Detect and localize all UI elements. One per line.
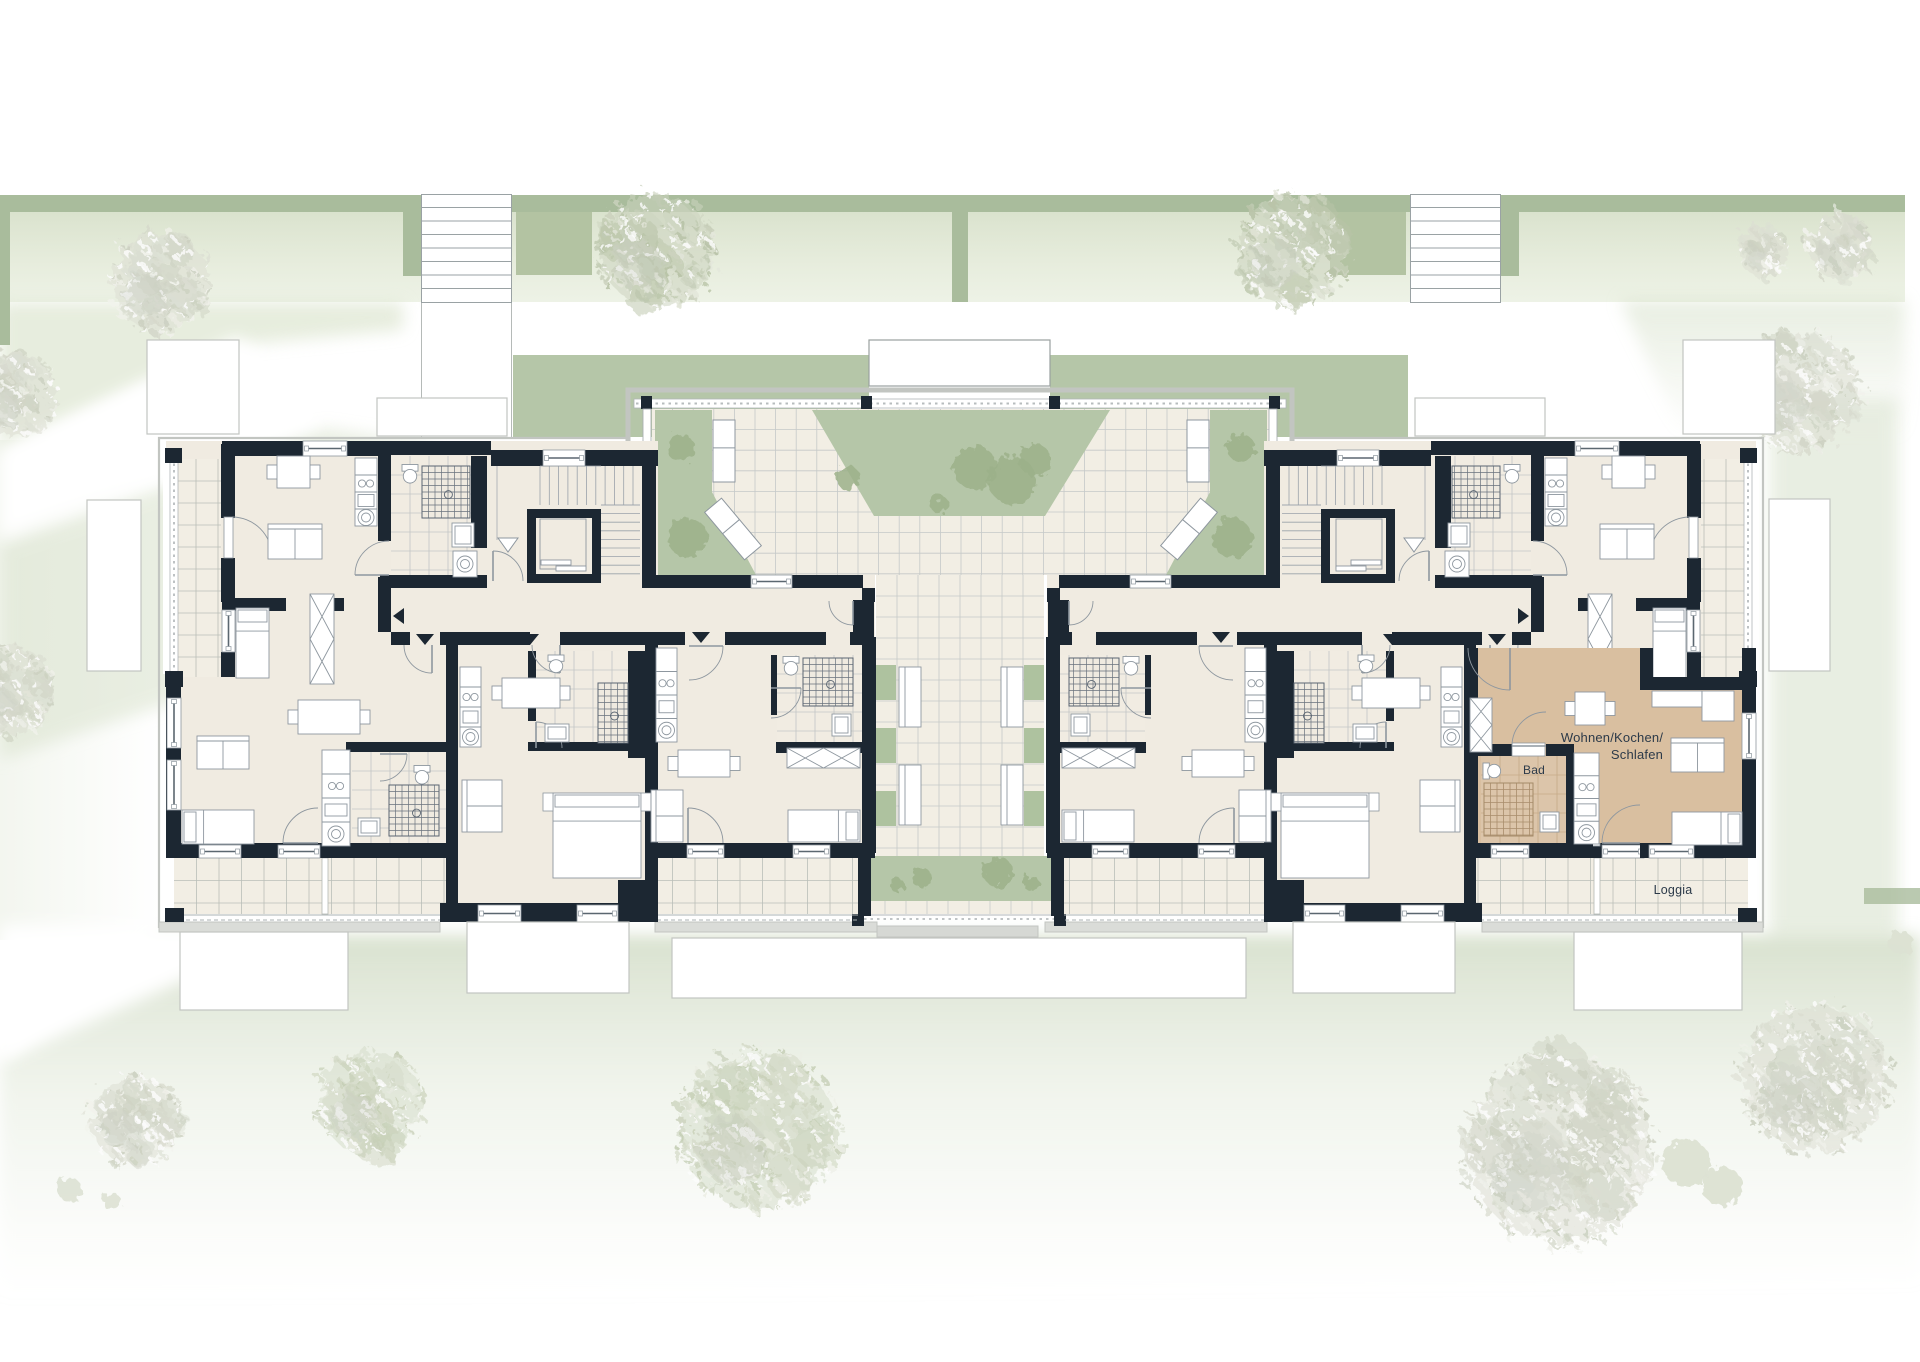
svg-text:Loggia: Loggia [1654,883,1693,897]
svg-text:Wohnen/Kochen/: Wohnen/Kochen/ [1561,730,1663,745]
svg-text:Schlafen: Schlafen [1611,747,1663,762]
svg-text:Bad: Bad [1523,763,1545,777]
